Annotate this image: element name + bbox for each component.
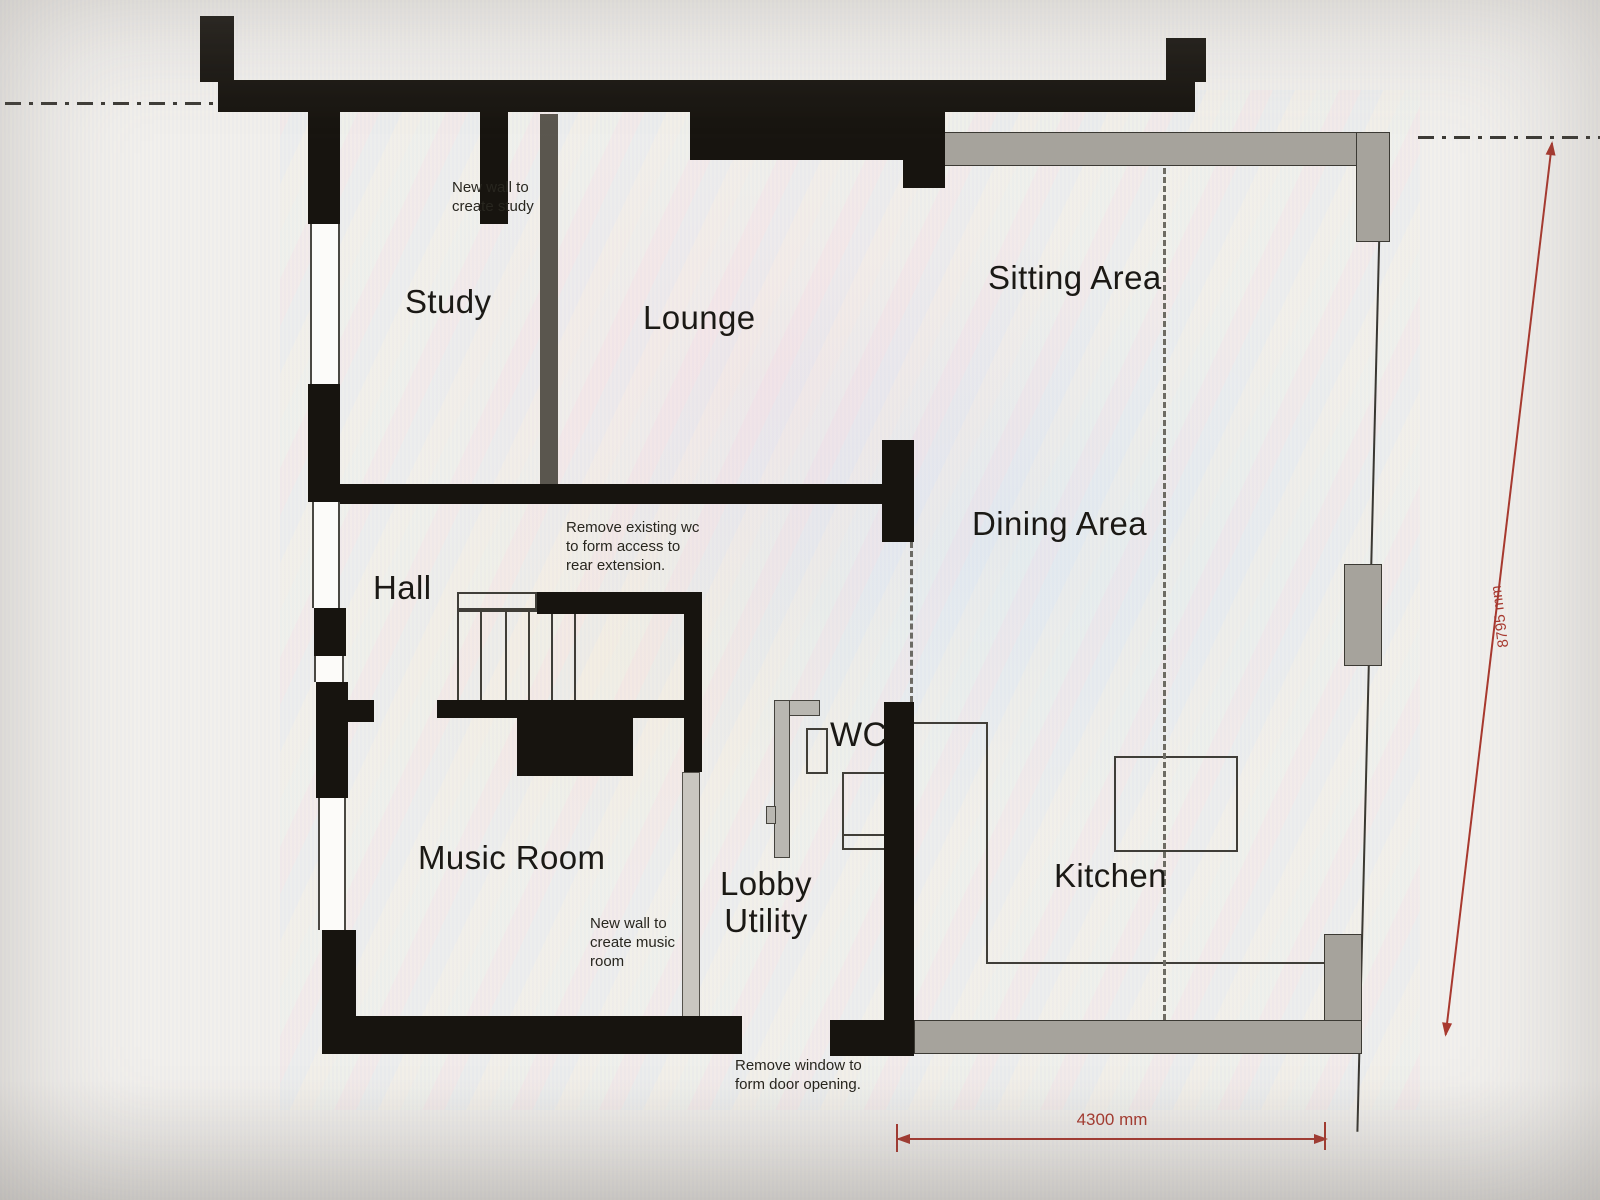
kitchen-island [1114, 756, 1238, 852]
wall-left-2 [308, 384, 340, 502]
wall-left-3 [314, 608, 346, 656]
wc-toilet [842, 772, 886, 850]
room-label-kitchen: Kitchen [1054, 858, 1167, 895]
stairs-outline [457, 610, 702, 702]
extension-wall-top-corner [1356, 132, 1390, 242]
wc-wall-left [774, 700, 790, 858]
dimension-arrow-up-icon [1546, 141, 1558, 156]
kitchen-counter-line-left [986, 722, 988, 964]
annotation-new-wall-study: New wall to create study [452, 178, 572, 216]
dimension-line-horizontal [898, 1138, 1326, 1140]
wc-wall-left-stub [766, 806, 776, 824]
window-hall-small [314, 656, 344, 682]
new-wall-music-room [682, 772, 700, 1022]
boundary-line-right [1418, 136, 1600, 139]
extension-wall-top [928, 132, 1390, 166]
dimension-label-horizontal: 4300 mm [898, 1110, 1326, 1130]
wall-left-inner-stub [348, 700, 374, 722]
window-study [310, 224, 340, 384]
room-label-wc: WC [830, 716, 887, 754]
dimension-arrow-left-icon [896, 1134, 910, 1144]
wall-hall-dining-divider [340, 484, 914, 504]
window-music-room [318, 798, 346, 930]
wall-stairs-right [684, 592, 702, 772]
stair-tread [505, 610, 507, 702]
wall-top [218, 80, 1195, 112]
wall-lounge-top-recess [690, 112, 905, 160]
wall-dining-tee-stub [882, 440, 914, 542]
dimension-arrow-down-icon [1440, 1022, 1452, 1037]
wc-toilet-cistern-line [842, 834, 886, 836]
room-label-hall: Hall [373, 570, 431, 607]
stairs-landing-outline [457, 592, 537, 610]
wall-stairs-bottom [437, 700, 702, 718]
wall-chimney-breast [517, 718, 633, 776]
stair-tread [574, 610, 576, 702]
screen-moire-overlay [280, 90, 1420, 1110]
kitchen-counter-line-top [914, 722, 988, 724]
new-wall-study [540, 114, 558, 484]
wall-chimney-stub-top-left [200, 16, 234, 82]
extension-wall-pier-right [1344, 564, 1382, 666]
window-hall [312, 502, 340, 608]
stair-tread [528, 610, 530, 702]
wall-left-4 [316, 682, 348, 798]
stair-tread [551, 610, 553, 702]
annotation-remove-window: Remove window to form door opening. [735, 1056, 925, 1094]
room-label-dining-area: Dining Area [972, 506, 1147, 543]
room-label-music-room: Music Room [418, 840, 605, 877]
room-label-sitting-area: Sitting Area [988, 260, 1162, 297]
dashed-line-dining [910, 542, 913, 702]
extension-wall-bottom [914, 1020, 1362, 1054]
annotation-new-wall-music: New wall to create music room [590, 914, 700, 972]
annotation-remove-wc: Remove existing wc to form access to rea… [566, 518, 736, 576]
stair-tread [480, 610, 482, 702]
floor-plan-photo: 8795 mm 4300 mm Study Lounge Sitting Are… [0, 0, 1600, 1200]
wall-lobby-kitchen-divider [884, 702, 914, 1032]
room-label-lounge: Lounge [643, 300, 756, 337]
extension-wall-bottom-corner [1324, 934, 1362, 1030]
room-label-study: Study [405, 284, 491, 321]
wall-left-1 [308, 112, 340, 224]
room-label-lobby-utility: Lobby Utility [700, 866, 832, 940]
wall-chimney-stub-top-right [1166, 38, 1206, 82]
wc-sink [806, 728, 828, 774]
wall-bottom-left [322, 1016, 742, 1054]
kitchen-counter-line-bottom [986, 962, 1324, 964]
boundary-line-left [5, 102, 215, 105]
wall-stairs-top [537, 592, 702, 614]
wall-lounge-right-stub [903, 112, 945, 188]
